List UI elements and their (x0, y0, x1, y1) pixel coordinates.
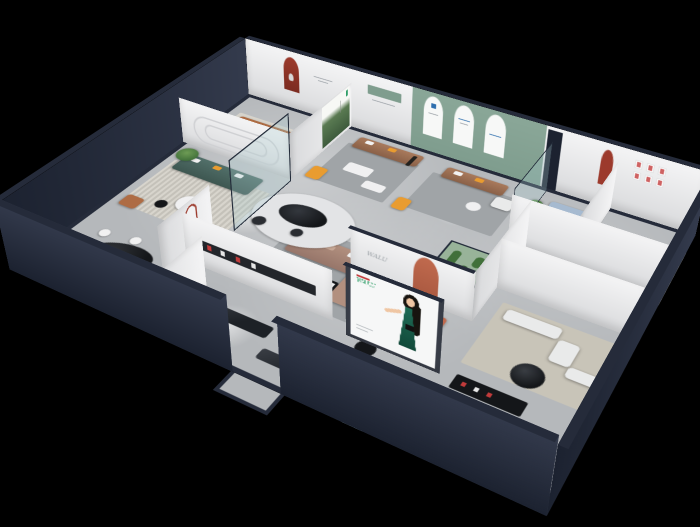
hostess-arm (384, 308, 402, 314)
arched-banner (453, 103, 475, 149)
wall-art-sage (368, 84, 402, 103)
display-item (220, 250, 225, 257)
arched-banner (423, 94, 444, 139)
display-item (251, 263, 256, 270)
walu-wall-logo: WALU (366, 250, 387, 264)
banner-logo-blue (431, 103, 436, 109)
red-display-item (460, 382, 467, 387)
banner-text-line (489, 134, 501, 138)
arched-banner (484, 112, 508, 158)
red-display-item (486, 392, 493, 398)
banner-text-line (460, 122, 468, 125)
red-display-item (236, 256, 241, 263)
poster-logo-green (346, 89, 348, 96)
banner-text-line (429, 112, 439, 116)
display-item (473, 387, 480, 392)
dining-chair-white (96, 228, 113, 238)
render-scene: WALU WALU (0, 0, 700, 500)
poster-text-line (340, 100, 341, 112)
red-display-item (207, 245, 212, 252)
showroom-building: WALU WALU (10, 94, 696, 516)
